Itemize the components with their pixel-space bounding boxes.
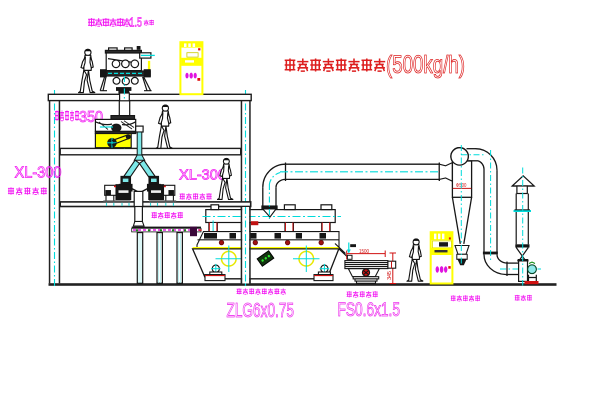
svg-text:ZLG6x0.75: ZLG6x0.75 (227, 300, 295, 322)
svg-text:1.5: 1.5 (130, 15, 143, 30)
svg-text:1500: 1500 (359, 249, 369, 255)
svg-text:(500kg/h): (500kg/h) (386, 51, 465, 79)
svg-text:XL-300: XL-300 (179, 167, 226, 184)
svg-text:XL-300: XL-300 (15, 165, 62, 182)
svg-text:FS0.6x1.5: FS0.6x1.5 (338, 300, 401, 321)
svg-text:345: 345 (387, 271, 393, 280)
